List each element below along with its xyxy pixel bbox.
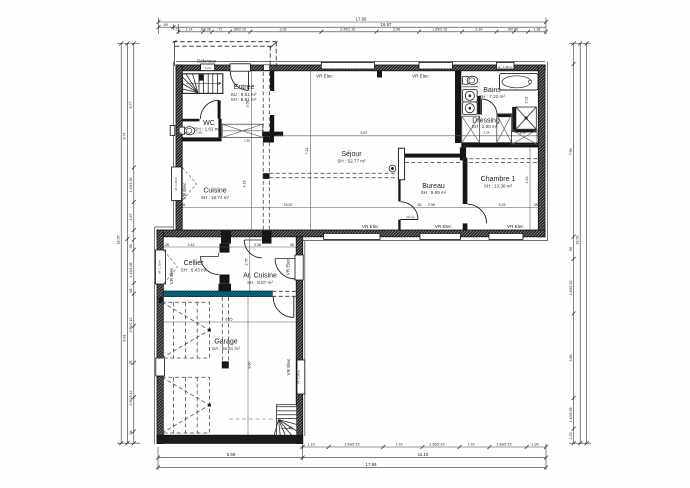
svg-text:4.19: 4.19 bbox=[243, 181, 247, 188]
svg-text:Cellier: Cellier bbox=[184, 260, 205, 267]
svg-text:Ar. Cuisine: Ar. Cuisine bbox=[243, 273, 277, 280]
svg-text:5.67: 5.67 bbox=[361, 131, 368, 135]
svg-text:SH : 52.77 m²: SH : 52.77 m² bbox=[337, 159, 366, 164]
svg-text:SH : 8.61 m²: SH : 8.61 m² bbox=[231, 97, 257, 102]
svg-text:2.49/2.15: 2.49/2.15 bbox=[340, 27, 355, 31]
svg-text:1.69/2.15: 1.69/2.15 bbox=[430, 442, 445, 446]
svg-text:2.24: 2.24 bbox=[484, 131, 490, 135]
svg-text:SH : 16.74 m²: SH : 16.74 m² bbox=[201, 195, 230, 200]
svg-text:Cuisine: Cuisine bbox=[203, 188, 226, 195]
svg-text:VR Elec: VR Elec bbox=[435, 224, 452, 229]
svg-text:AF 1.10 m: AF 1.10 m bbox=[158, 260, 162, 274]
svg-text:2.49/2.15: 2.49/2.15 bbox=[345, 442, 360, 446]
svg-text:1.67: 1.67 bbox=[129, 214, 133, 221]
svg-text:1.79: 1.79 bbox=[396, 442, 403, 446]
svg-text:Séjour: Séjour bbox=[341, 151, 362, 158]
svg-text:1.40/1.05: 1.40/1.05 bbox=[569, 408, 573, 423]
svg-text:1.49/1.05: 1.49/1.05 bbox=[129, 263, 133, 278]
svg-text:17.69: 17.69 bbox=[356, 16, 368, 21]
svg-text:Garage: Garage bbox=[214, 339, 237, 346]
svg-text:3.25: 3.25 bbox=[499, 203, 506, 207]
svg-text:SH : 7.22 m²: SH : 7.22 m² bbox=[479, 94, 505, 99]
svg-text:7.21: 7.21 bbox=[305, 148, 309, 155]
svg-text:SA : 56.91 m²: SA : 56.91 m² bbox=[212, 346, 240, 351]
svg-text:.69: .69 bbox=[163, 23, 168, 27]
svg-text:VR Elec: VR Elec bbox=[285, 258, 290, 275]
svg-text:.59: .59 bbox=[417, 203, 422, 207]
svg-text:.36: .36 bbox=[533, 203, 538, 207]
svg-text:2.02: 2.02 bbox=[525, 97, 529, 104]
svg-text:.95: .95 bbox=[129, 289, 133, 294]
svg-text:2.42: 2.42 bbox=[188, 243, 195, 247]
svg-text:1.15: 1.15 bbox=[520, 131, 526, 135]
svg-text:Défenses: Défenses bbox=[197, 58, 217, 63]
svg-text:1.49/1.35: 1.49/1.35 bbox=[129, 178, 133, 193]
svg-text:9.74: 9.74 bbox=[123, 133, 127, 140]
svg-text:.22: .22 bbox=[175, 28, 180, 32]
svg-text:.26: .26 bbox=[164, 243, 169, 247]
svg-text:AF 1.28 m: AF 1.28 m bbox=[296, 370, 300, 384]
svg-text:1.18: 1.18 bbox=[533, 27, 540, 31]
svg-text:6.15: 6.15 bbox=[226, 318, 233, 322]
svg-text:1.23: 1.23 bbox=[278, 132, 284, 136]
svg-text:3.58: 3.58 bbox=[245, 101, 249, 108]
svg-text:E : 1.35 m: E : 1.35 m bbox=[498, 65, 512, 69]
svg-text:16.57: 16.57 bbox=[381, 22, 393, 27]
svg-text:VR Elec: VR Elec bbox=[362, 224, 379, 229]
svg-text:VR Elec: VR Elec bbox=[182, 182, 187, 199]
svg-text:.69/.95: .69/.95 bbox=[200, 27, 211, 31]
svg-text:VR Elec: VR Elec bbox=[286, 358, 291, 375]
svg-text:1.79: 1.79 bbox=[468, 442, 475, 446]
svg-text:9.77: 9.77 bbox=[129, 102, 133, 109]
svg-text:19.02: 19.02 bbox=[284, 203, 293, 207]
svg-text:.36: .36 bbox=[289, 243, 294, 247]
svg-text:.99/2.15: .99/2.15 bbox=[233, 27, 246, 31]
svg-text:.90: .90 bbox=[569, 247, 573, 252]
svg-text:2.39: 2.39 bbox=[475, 27, 482, 31]
svg-text:VR Elec: VR Elec bbox=[412, 74, 429, 79]
svg-text:SH : 9.89 m²: SH : 9.89 m² bbox=[421, 190, 447, 195]
svg-text:1.88: 1.88 bbox=[244, 138, 250, 142]
svg-text:SH : 6.43 m²: SH : 6.43 m² bbox=[181, 268, 207, 273]
svg-text:2.49/2.15: 2.49/2.15 bbox=[569, 281, 573, 296]
svg-text:7.99: 7.99 bbox=[569, 149, 573, 156]
svg-text:2.99: 2.99 bbox=[393, 27, 400, 31]
svg-text:1.69/2.15: 1.69/2.15 bbox=[432, 27, 447, 31]
svg-text:VR Elec: VR Elec bbox=[316, 74, 333, 79]
svg-text:.71: .71 bbox=[217, 27, 222, 31]
svg-text:.60/.60: .60/.60 bbox=[507, 27, 518, 31]
svg-text:.60: .60 bbox=[177, 131, 182, 135]
svg-text:8.60: 8.60 bbox=[247, 362, 251, 369]
svg-text:1.20: 1.20 bbox=[205, 66, 211, 70]
svg-text:3.26: 3.26 bbox=[280, 27, 287, 31]
svg-text:.58: .58 bbox=[129, 431, 133, 436]
svg-text:3.38: 3.38 bbox=[254, 243, 261, 247]
svg-text:Chambre 1: Chambre 1 bbox=[481, 176, 516, 183]
svg-text:Entrée: Entrée bbox=[234, 84, 255, 91]
svg-text:17.69: 17.69 bbox=[366, 462, 378, 467]
svg-text:Bureau: Bureau bbox=[422, 183, 445, 190]
svg-text:1.69/2.15: 1.69/2.15 bbox=[497, 442, 512, 446]
svg-text:18.35: 18.35 bbox=[116, 236, 120, 245]
svg-text:.95: .95 bbox=[129, 244, 133, 249]
svg-text:2.96: 2.96 bbox=[428, 203, 435, 207]
svg-text:18.53: 18.53 bbox=[575, 236, 579, 245]
svg-text:SH : 8.87 m²: SH : 8.87 m² bbox=[247, 280, 273, 285]
svg-text:SH : 13.38 m²: SH : 13.38 m² bbox=[484, 183, 513, 188]
svg-text:2.50/2.12: 2.50/2.12 bbox=[129, 318, 133, 333]
svg-text:SH : 2.80 m²: SH : 2.80 m² bbox=[472, 124, 498, 129]
svg-text:2.29: 2.29 bbox=[569, 433, 573, 440]
svg-text:6.59: 6.59 bbox=[227, 452, 236, 457]
svg-text:1.19: 1.19 bbox=[308, 442, 315, 446]
svg-text:2.50/2.12: 2.50/2.12 bbox=[129, 391, 133, 406]
svg-text:8.91: 8.91 bbox=[123, 335, 127, 342]
svg-text:3.86: 3.86 bbox=[569, 355, 573, 362]
svg-text:.26: .26 bbox=[180, 203, 185, 207]
svg-text:VR Elec: VR Elec bbox=[507, 224, 524, 229]
svg-text:3.33: 3.33 bbox=[525, 177, 529, 184]
svg-text:1.99: 1.99 bbox=[532, 442, 539, 446]
svg-text:VR Elec: VR Elec bbox=[169, 267, 174, 284]
svg-text:1.99: 1.99 bbox=[196, 131, 202, 135]
svg-text:2.75: 2.75 bbox=[245, 259, 249, 266]
svg-text:PP 93: PP 93 bbox=[407, 215, 415, 219]
svg-text:11.10: 11.10 bbox=[418, 452, 429, 457]
svg-text:1.14: 1.14 bbox=[186, 27, 193, 31]
svg-text:SD 93: SD 93 bbox=[463, 188, 467, 197]
svg-text:AF 1.10 m: AF 1.10 m bbox=[174, 177, 178, 191]
svg-text:.55: .55 bbox=[129, 361, 133, 366]
